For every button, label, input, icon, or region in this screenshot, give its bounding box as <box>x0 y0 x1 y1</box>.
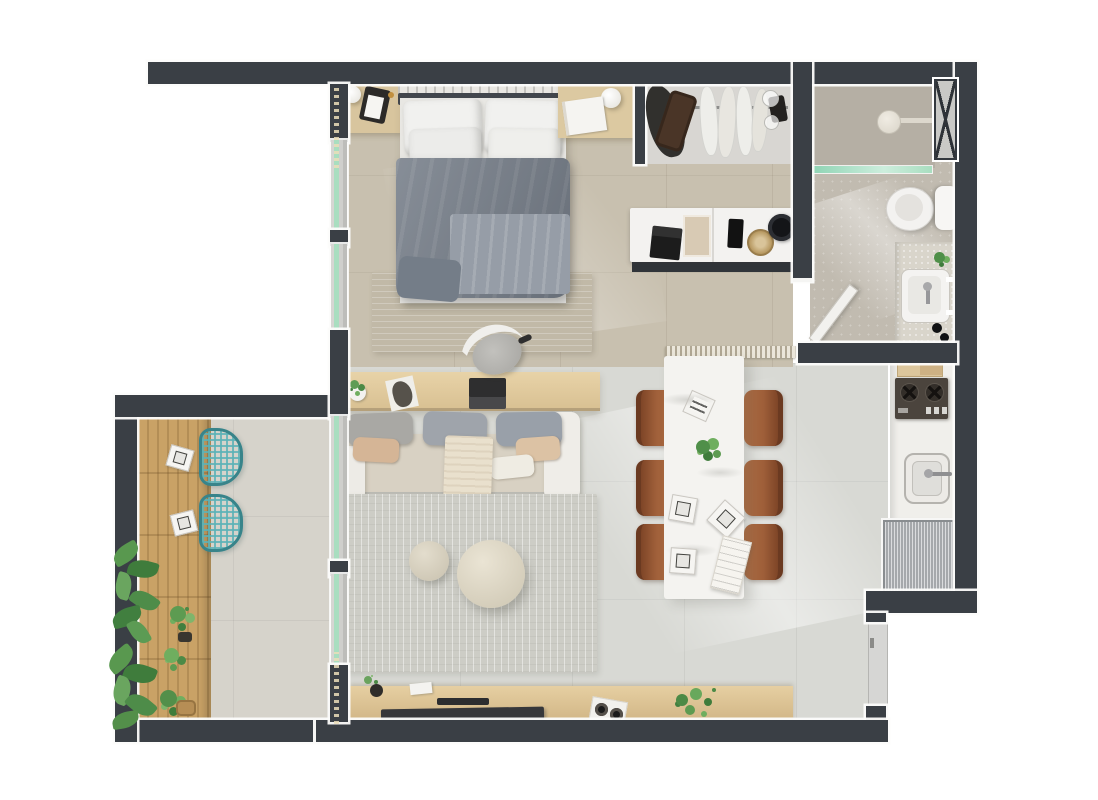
pouf-small <box>409 541 449 581</box>
gold-decor <box>388 92 394 98</box>
bar-stool <box>199 494 243 552</box>
fern-plant <box>676 694 688 706</box>
soap-bar <box>946 310 954 315</box>
tv-soundbar <box>437 698 489 705</box>
wall-bottom <box>137 720 888 742</box>
decor-vase <box>370 684 383 697</box>
sofa-white-pillow <box>489 454 535 480</box>
dining-chair <box>744 524 783 580</box>
bottle <box>932 323 942 333</box>
burner <box>925 383 944 402</box>
white-book <box>409 682 432 695</box>
black-bowl <box>768 214 795 241</box>
speaker <box>595 703 608 716</box>
sofa-tan-pillow <box>352 437 399 463</box>
notebook <box>562 96 607 135</box>
wall-bathroom-bottom <box>798 343 957 363</box>
bottle <box>940 333 949 342</box>
cooktop-knobs <box>926 407 948 414</box>
wall-end-cap <box>793 278 812 282</box>
entry-door <box>868 622 888 710</box>
wall-step <box>866 591 977 613</box>
cutting-board-small <box>920 363 942 375</box>
wall-right <box>955 62 977 613</box>
square-plate <box>668 494 698 524</box>
plant-pot <box>178 632 192 642</box>
bedroom-window <box>331 244 347 332</box>
service-shaft <box>934 79 957 160</box>
wall-left-bottom <box>330 665 348 722</box>
dresser-divider <box>712 208 714 262</box>
closet-side-panel <box>635 80 645 164</box>
shower-floor <box>810 78 935 168</box>
shower-glass-partition <box>812 166 932 173</box>
glass-vase <box>762 90 779 107</box>
dining-chair <box>744 460 783 516</box>
watermark-text <box>334 88 339 168</box>
wall-entry-stub <box>866 613 886 622</box>
entry-door-handle <box>870 638 874 648</box>
bed-duvet-corner <box>396 255 461 302</box>
shower-head <box>877 110 901 134</box>
refrigerator <box>883 520 961 599</box>
wall-left-mid <box>330 330 348 418</box>
kitchen-sink-basin <box>912 461 942 496</box>
potted-plant <box>164 648 179 663</box>
burner <box>900 383 919 402</box>
wall-joint-line <box>313 720 316 742</box>
potted-plant <box>170 606 186 622</box>
wall-top <box>148 62 977 84</box>
pouf-large <box>457 540 525 608</box>
floor-plan <box>0 0 1098 800</box>
folded-towels <box>683 215 711 257</box>
shower-arm <box>896 118 932 123</box>
kitchen-faucet-base <box>924 469 933 478</box>
wall-bedroom-bathroom-divider <box>793 62 812 281</box>
phone <box>727 219 743 249</box>
plant-centerpiece <box>696 440 710 454</box>
potted-plant <box>160 690 177 707</box>
table-lamp <box>601 88 621 108</box>
balcony-sliding-door[interactable] <box>331 416 347 563</box>
decor-sprigs <box>364 676 372 684</box>
dining-chair <box>744 390 783 446</box>
soap-bar <box>946 277 954 282</box>
wall-balcony-top <box>115 395 332 417</box>
watermark-text <box>334 652 339 724</box>
glass-vase <box>764 115 779 130</box>
bar-stool <box>199 428 243 486</box>
bed-duvet-fold <box>450 214 570 294</box>
wall-bedroom-left <box>330 84 348 142</box>
vanity-plant <box>934 252 945 263</box>
desk-plant-leaves <box>350 380 359 389</box>
laptop <box>649 226 682 261</box>
toilet-bowl-inner <box>895 194 923 221</box>
cooktop-label <box>898 408 908 413</box>
woven-basket <box>176 700 196 716</box>
vanity-faucet-base <box>923 282 932 291</box>
square-plate <box>669 547 697 575</box>
